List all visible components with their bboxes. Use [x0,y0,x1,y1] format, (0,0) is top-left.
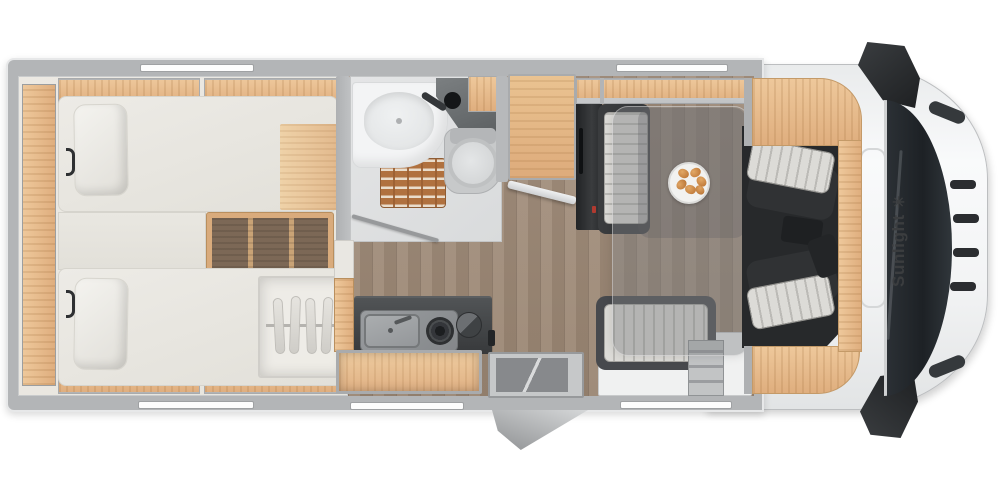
overcab-frame-top [752,78,862,146]
bed-steps-treads [212,218,328,268]
counter-handle [488,330,495,346]
hanger-icon [289,296,301,354]
grille-bar [950,180,976,189]
kitchen-side-wood [334,278,354,352]
bed-foot-shelf [280,124,338,210]
window-top-dinette [616,64,728,72]
fridge-indicator [592,206,596,213]
window-bottom-bedroom [138,401,254,409]
partition-wall [496,76,508,182]
motorhome-floorplan: Sunlight ✳ [0,0,1000,481]
kitchen-side-white [334,240,354,280]
bathroom-wall [336,76,350,242]
sink-drain [388,328,393,333]
window-bottom-dinette [620,401,732,409]
pillow-top [73,104,129,197]
reading-light-icon [66,290,75,318]
bed-bridge-cushion [58,212,206,270]
exterior-step [492,410,588,450]
tall-cabinet [508,74,576,180]
croissant-icon [677,168,690,180]
round-board [456,312,482,338]
overcab-frame-right [838,140,862,352]
basin-drain [396,118,402,124]
pillow-bottom [73,278,129,371]
toilet-bowl [448,138,498,188]
dinette-cabinet-divider [600,78,604,104]
open-drawer [336,350,482,394]
rear-shelf [22,84,56,386]
gas-hob [426,317,454,345]
grille-bar [953,248,979,257]
grille-bar [953,214,979,223]
faucet-knob [444,92,461,109]
brand-label: Sunlight [889,214,909,287]
fridge-handle [579,128,583,174]
window-bottom-kitchen [350,402,464,410]
plate [668,162,710,204]
window-top-bedroom [140,64,254,72]
brand-label-group: Sunlight ✳ [884,176,914,306]
brand-logo-icon: ✳ [890,195,908,208]
grille-bar [950,282,976,291]
roof-hatch [860,148,886,308]
reading-light-icon [66,148,75,176]
hanger-icon [305,298,317,354]
entry-step-mat [496,358,568,392]
